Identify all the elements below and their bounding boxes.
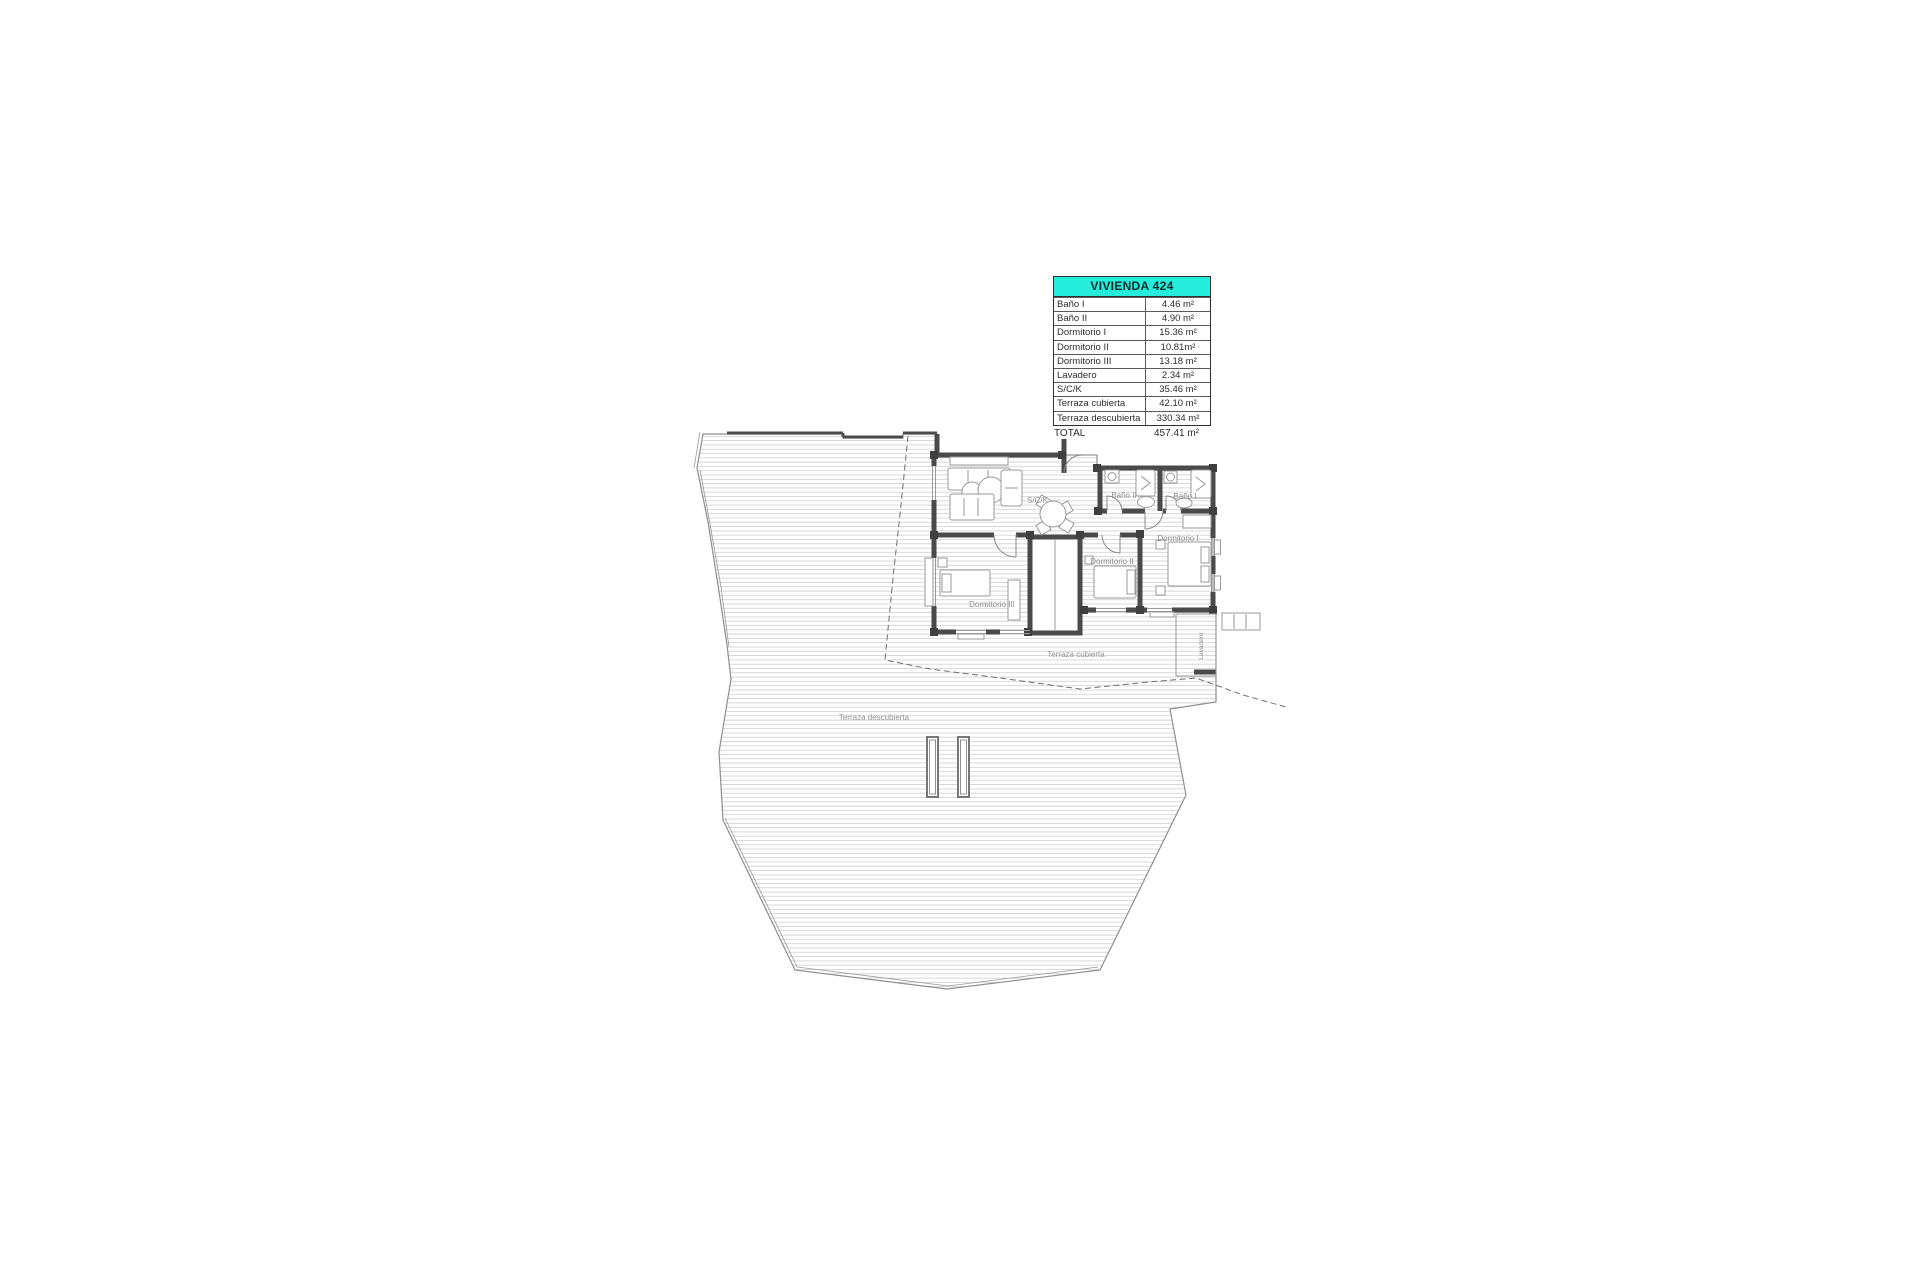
sideboard <box>950 457 1008 465</box>
room-area-cell: 15.36 m² <box>1146 326 1210 339</box>
table-total-row: TOTAL 457.41 m² <box>1053 427 1211 441</box>
label-terraza-cubierta: Terraza cubierta <box>1047 650 1105 659</box>
table-row: Lavadero 2.34 m² <box>1054 368 1210 382</box>
room-label-sck: S/C/K <box>1027 496 1049 505</box>
total-value: 457.41 m² <box>1142 427 1211 441</box>
label-terraza-descubierta: Terraza descubierta <box>839 713 910 722</box>
room-area-cell: 35.46 m² <box>1146 383 1210 396</box>
table-row: Dormitorio II 10.81m² <box>1054 340 1210 354</box>
room-area-cell: 10.81m² <box>1146 341 1210 354</box>
room-area-cell: 2.34 m² <box>1146 369 1210 382</box>
table-row: Dormitorio I 15.36 m² <box>1054 325 1210 339</box>
room-label-lavadero: Lavadero <box>1198 632 1205 659</box>
room-name-cell: Baño I <box>1054 298 1146 311</box>
room-name-cell: Dormitorio III <box>1054 355 1146 368</box>
closet-core <box>1030 537 1080 633</box>
room-name-cell: Dormitorio II <box>1054 341 1146 354</box>
table-row: S/C/K 35.46 m² <box>1054 382 1210 396</box>
total-label: TOTAL <box>1053 427 1142 441</box>
table-row: Dormitorio III 13.18 m² <box>1054 354 1210 368</box>
room-name-cell: Terraza cubierta <box>1054 397 1146 410</box>
table-row: Baño I 4.46 m² <box>1054 297 1210 311</box>
exterior-step <box>1222 613 1260 630</box>
sheet: S/C/K Baño II Baño I Dormitorio I Dormit… <box>0 0 1920 1280</box>
room-label-dorm3: Dormitorio III <box>969 600 1015 609</box>
room-name-cell: Terraza descubierta <box>1054 412 1146 425</box>
room-name-cell: Lavadero <box>1054 369 1146 382</box>
room-label-bano1: Baño I <box>1173 492 1196 501</box>
room-name-cell: S/C/K <box>1054 383 1146 396</box>
table-row: Terraza cubierta 42.10 m² <box>1054 396 1210 410</box>
room-area-cell: 42.10 m² <box>1146 397 1210 410</box>
table-row: Baño II 4.90 m² <box>1054 311 1210 325</box>
room-area-cell: 4.46 m² <box>1146 298 1210 311</box>
area-table: VIVIENDA 424 Baño I 4.46 m² Baño II 4.90… <box>1053 276 1211 441</box>
room-area-cell: 330.34 m² <box>1146 412 1210 425</box>
area-table-box: VIVIENDA 424 Baño I 4.46 m² Baño II 4.90… <box>1053 276 1211 426</box>
room-label-bano2: Baño II <box>1111 491 1136 500</box>
area-table-title: VIVIENDA 424 <box>1054 277 1210 297</box>
table-row: Terraza descubierta 330.34 m² <box>1054 411 1210 425</box>
room-label-dorm2: Dormitorio II <box>1090 557 1134 566</box>
room-name-cell: Dormitorio I <box>1054 326 1146 339</box>
room-name-cell: Baño II <box>1054 312 1146 325</box>
room-area-cell: 4.90 m² <box>1146 312 1210 325</box>
floor-plan: S/C/K Baño II Baño I Dormitorio I Dormit… <box>0 0 1920 1280</box>
room-label-dorm1: Dormitorio I <box>1157 534 1198 543</box>
room-area-cell: 13.18 m² <box>1146 355 1210 368</box>
sofa-2 <box>950 494 994 520</box>
